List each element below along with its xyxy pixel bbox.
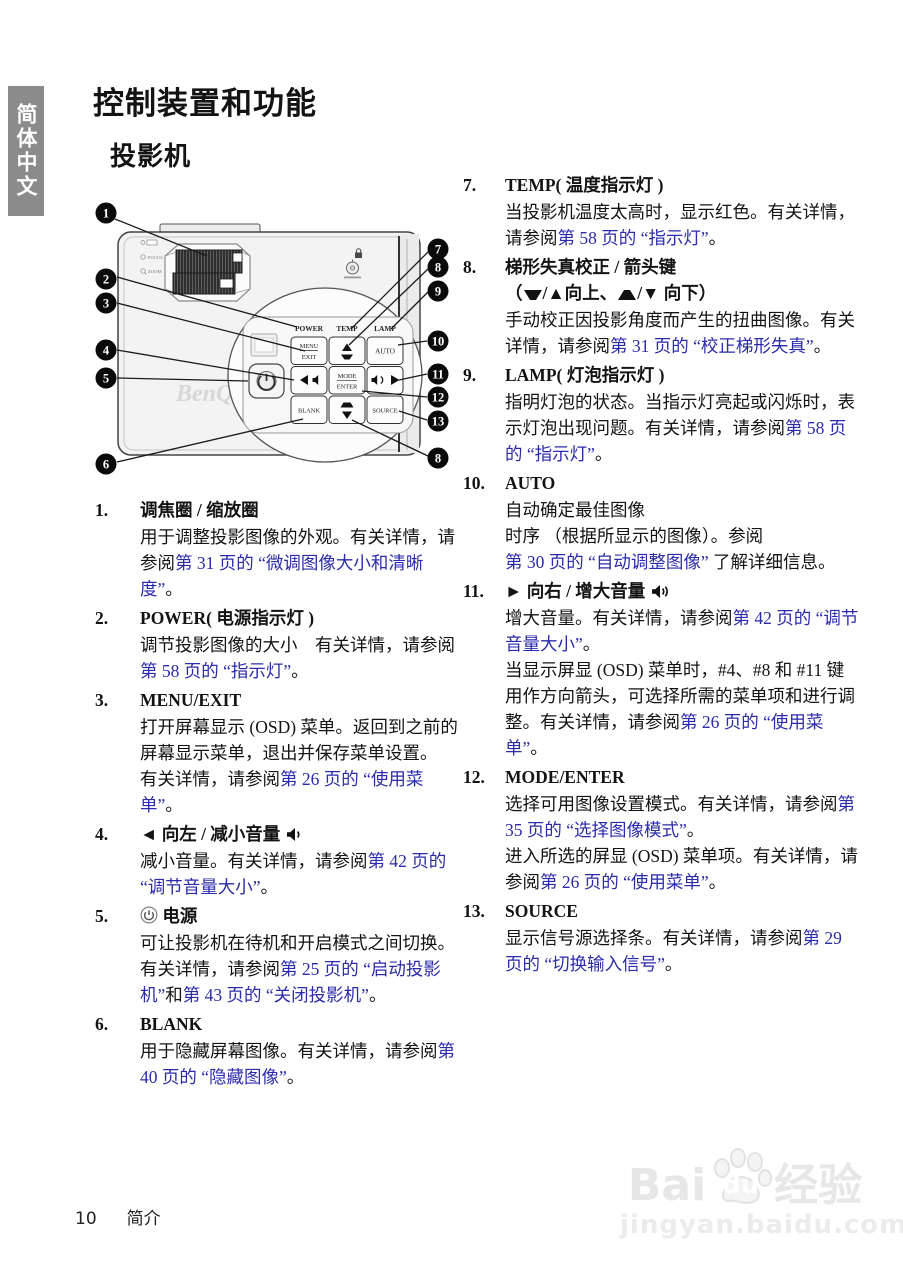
item-paragraph: 减小音量。有关详情，请参阅第 42 页的 “调节音量大小”。 bbox=[140, 848, 463, 900]
item-number: 9. bbox=[463, 362, 505, 467]
list-item-12: 12.MODE/ENTER选择可用图像设置模式。有关详情，请参阅第 35 页的 … bbox=[463, 764, 861, 895]
text-run: 用于隐藏屏幕图像。有关详情，请参阅 bbox=[140, 1041, 438, 1061]
item-paragraph: 用于调整投影图像的外观。有关详情，请参阅第 31 页的 “微调图像大小和清晰度”… bbox=[140, 524, 463, 602]
list-item-2: 2.POWER( 电源指示灯 )调节投影图像的大小 有关详情，请参阅第 58 页… bbox=[95, 605, 463, 684]
page-reference-link[interactable]: 第 26 页的 “使用菜单” bbox=[540, 872, 709, 892]
baidu-paw-icon: du bbox=[708, 1146, 772, 1210]
list-item-7: 7.TEMP( 温度指示灯 )当投影机温度太高时，显示红色。有关详情，请参阅第 … bbox=[463, 172, 861, 251]
right-column-list: 7.TEMP( 温度指示灯 )当投影机温度太高时，显示红色。有关详情，请参阅第 … bbox=[463, 172, 861, 980]
item-title: ► 向右 / 增大音量 bbox=[505, 578, 861, 604]
svg-text:SOURCE: SOURCE bbox=[372, 408, 397, 415]
svg-text:2: 2 bbox=[103, 273, 109, 287]
section-subtitle: 投影机 bbox=[110, 136, 191, 173]
item-body: 梯形失真校正 / 箭头键（/▲向上、/▼ 向下）手动校正因投影角度而产生的扭曲图… bbox=[505, 254, 861, 359]
left-column-list: 1.调焦圈 / 缩放圈用于调整投影图像的外观。有关详情，请参阅第 31 页的 “… bbox=[95, 497, 463, 1093]
list-item-8: 8.梯形失真校正 / 箭头键（/▲向上、/▼ 向下）手动校正因投影角度而产生的扭… bbox=[463, 254, 861, 359]
item-body: BLANK用于隐藏屏幕图像。有关详情，请参阅第 40 页的 “隐藏图像”。 bbox=[140, 1011, 463, 1090]
callout-12: 12 bbox=[428, 387, 449, 408]
item-body: ◄ 向左 / 减小音量 减小音量。有关详情，请参阅第 42 页的 “调节音量大小… bbox=[140, 821, 463, 900]
item-body: AUTO自动确定最佳图像时序 （根据所显示的图像）。参阅第 30 页的 “自动调… bbox=[505, 470, 861, 575]
list-item-11: 11.► 向右 / 增大音量 增大音量。有关详情，请参阅第 42 页的 “调节音… bbox=[463, 578, 861, 761]
svg-text:10: 10 bbox=[432, 335, 445, 349]
text-run: ► 向右 / 增大音量 bbox=[505, 581, 650, 601]
svg-text:3: 3 bbox=[103, 297, 109, 311]
item-body: ► 向右 / 增大音量 增大音量。有关详情，请参阅第 42 页的 “调节音量大小… bbox=[505, 578, 861, 761]
callout-8-bottom: 8 bbox=[428, 448, 449, 469]
svg-text:7: 7 bbox=[435, 243, 441, 257]
item-title: POWER( 电源指示灯 ) bbox=[140, 605, 463, 631]
projector-diagram: BenQ FOCUS ZOOM bbox=[85, 195, 462, 487]
item-paragraph: 可让投影机在待机和开启模式之间切换。 bbox=[140, 930, 463, 956]
item-paragraph: 打开屏幕显示 (OSD) 菜单。返回到之前的屏幕显示菜单，退出并保存菜单设置。 bbox=[140, 714, 463, 766]
item-body: LAMP( 灯泡指示灯 )指明灯泡的状态。当指示灯亮起或闪烁时，表示灯泡出现问题… bbox=[505, 362, 861, 467]
text-run: MODE/ENTER bbox=[505, 767, 625, 787]
text-run: 调焦圈 / 缩放圈 bbox=[140, 500, 259, 520]
svg-text:4: 4 bbox=[103, 344, 110, 358]
callout-2: 2 bbox=[96, 269, 117, 290]
list-item-4: 4.◄ 向左 / 减小音量 减小音量。有关详情，请参阅第 42 页的 “调节音量… bbox=[95, 821, 463, 900]
item-number: 4. bbox=[95, 821, 140, 900]
text-run: 。 bbox=[287, 1067, 305, 1087]
text-run: SOURCE bbox=[505, 901, 578, 921]
vol-up-icon bbox=[650, 584, 673, 599]
svg-text:11: 11 bbox=[432, 368, 444, 382]
manual-page: 简体中文 控制装置和功能 投影机 BenQ bbox=[0, 0, 903, 1280]
list-item-5: 5. 电源可让投影机在待机和开启模式之间切换。有关详情，请参阅第 25 页的 “… bbox=[95, 903, 463, 1008]
callout-9: 9 bbox=[428, 281, 449, 302]
callout-10: 10 bbox=[428, 331, 449, 352]
text-run: 可让投影机在待机和开启模式之间切换。 bbox=[140, 933, 455, 953]
callout-11: 11 bbox=[428, 364, 449, 385]
item-number: 5. bbox=[95, 903, 140, 1008]
item-title: 调焦圈 / 缩放圈 bbox=[140, 497, 463, 523]
item-body: SOURCE显示信号源选择条。有关详情，请参阅第 29 页的 “切换输入信号”。 bbox=[505, 898, 861, 977]
text-run: 打开屏幕显示 (OSD) 菜单。返回到之前的屏幕显示菜单，退出并保存菜单设置。 bbox=[140, 717, 458, 763]
text-run: TEMP( 温度指示灯 ) bbox=[505, 175, 663, 195]
svg-text:13: 13 bbox=[432, 415, 445, 429]
page-number: 10 bbox=[75, 1209, 97, 1229]
page-reference-link[interactable]: 第 58 页的 “指示灯” bbox=[558, 228, 709, 248]
item-number: 10. bbox=[463, 470, 505, 575]
callout-7: 7 bbox=[428, 239, 449, 260]
vol-down-icon bbox=[285, 827, 305, 842]
item-paragraph: 当投影机温度太高时，显示红色。有关详情，请参阅第 58 页的 “指示灯”。 bbox=[505, 199, 861, 251]
svg-text:MENU: MENU bbox=[300, 343, 319, 350]
callout-1: 1 bbox=[96, 203, 117, 224]
item-number: 11. bbox=[463, 578, 505, 761]
item-number: 2. bbox=[95, 605, 140, 684]
svg-text:9: 9 bbox=[435, 285, 441, 299]
list-item-6: 6.BLANK用于隐藏屏幕图像。有关详情，请参阅第 40 页的 “隐藏图像”。 bbox=[95, 1011, 463, 1090]
item-title: SOURCE bbox=[505, 898, 861, 924]
watermark-jingyan-text: 经验 bbox=[774, 1164, 862, 1208]
text-run: 电源 bbox=[158, 906, 197, 926]
item-number: 13. bbox=[463, 898, 505, 977]
svg-text:EXIT: EXIT bbox=[302, 354, 317, 361]
item-number: 1. bbox=[95, 497, 140, 602]
svg-text:8: 8 bbox=[435, 452, 441, 466]
text-run: 。 bbox=[165, 795, 183, 815]
item-title: TEMP( 温度指示灯 ) bbox=[505, 172, 861, 198]
focus-ring[interactable] bbox=[176, 250, 242, 273]
text-run: 。 bbox=[165, 579, 183, 599]
lens-assembly bbox=[165, 244, 250, 301]
power-indicator-label: POWER bbox=[295, 324, 324, 333]
power-icon bbox=[140, 906, 158, 924]
text-run: 。 bbox=[665, 954, 683, 974]
item-title: MENU/EXIT bbox=[140, 687, 463, 713]
item-title: AUTO bbox=[505, 470, 861, 496]
text-run: 。 bbox=[261, 877, 279, 897]
item-paragraph: 调节投影图像的大小 有关详情，请参阅第 58 页的 “指示灯”。 bbox=[140, 632, 463, 684]
text-run: AUTO bbox=[505, 473, 555, 493]
text-run: 。 bbox=[709, 228, 727, 248]
text-run: /▼ 向下） bbox=[637, 283, 716, 303]
item-title: 梯形失真校正 / 箭头键（/▲向上、/▼ 向下） bbox=[505, 254, 861, 306]
item-number: 12. bbox=[463, 764, 505, 895]
list-item-3: 3.MENU/EXIT打开屏幕显示 (OSD) 菜单。返回到之前的屏幕显示菜单，… bbox=[95, 687, 463, 818]
item-paragraph: 指明灯泡的状态。当指示灯亮起或闪烁时，表示灯泡出现问题。有关详情，请参阅第 58… bbox=[505, 389, 861, 467]
text-run: 。 bbox=[291, 661, 309, 681]
item-title: ◄ 向左 / 减小音量 bbox=[140, 821, 463, 847]
text-run: 调节投影图像的大小 有关详情，请参阅 bbox=[140, 635, 455, 655]
text-run: 。 bbox=[583, 634, 601, 654]
svg-text:8: 8 bbox=[435, 261, 441, 275]
item-title: BLANK bbox=[140, 1011, 463, 1037]
kt-down-icon bbox=[617, 289, 637, 301]
text-run: 。 bbox=[595, 444, 613, 464]
svg-text:12: 12 bbox=[432, 391, 445, 405]
svg-text:ZOOM: ZOOM bbox=[148, 269, 162, 274]
baidu-watermark: Bai du 经验 jingyan.baidu.com bbox=[620, 1146, 870, 1240]
item-body: MENU/EXIT打开屏幕显示 (OSD) 菜单。返回到之前的屏幕显示菜单，退出… bbox=[140, 687, 463, 818]
text-run: 有关详情，请参阅 bbox=[140, 769, 280, 789]
language-tab: 简体中文 bbox=[8, 86, 44, 216]
item-body: TEMP( 温度指示灯 )当投影机温度太高时，显示红色。有关详情，请参阅第 58… bbox=[505, 172, 861, 251]
text-run: （ bbox=[505, 283, 523, 303]
item-title: MODE/ENTER bbox=[505, 764, 861, 790]
item-paragraph: 进入所选的屏显 (OSD) 菜单项。有关详情，请参阅第 26 页的 “使用菜单”… bbox=[505, 843, 861, 895]
item-body: MODE/ENTER选择可用图像设置模式。有关详情，请参阅第 35 页的 “选择… bbox=[505, 764, 861, 895]
page-title: 控制装置和功能 bbox=[93, 78, 317, 123]
callout-8: 8 bbox=[428, 257, 449, 278]
item-number: 3. bbox=[95, 687, 140, 818]
svg-text:AUTO: AUTO bbox=[375, 348, 395, 356]
item-body: POWER( 电源指示灯 )调节投影图像的大小 有关详情，请参阅第 58 页的 … bbox=[140, 605, 463, 684]
text-run: 了解详细信息。 bbox=[709, 552, 836, 572]
text-run: 选择可用图像设置模式。有关详情，请参阅 bbox=[505, 794, 838, 814]
item-paragraph: 自动确定最佳图像时序 （根据所显示的图像）。参阅第 30 页的 “自动调整图像”… bbox=[505, 497, 861, 575]
list-item-1: 1.调焦圈 / 缩放圈用于调整投影图像的外观。有关详情，请参阅第 31 页的 “… bbox=[95, 497, 463, 602]
text-run: ◄ 向左 / 减小音量 bbox=[140, 824, 285, 844]
page-footer: 10简介 bbox=[75, 1204, 161, 1229]
control-panel: POWER TEMP LAMP bbox=[228, 288, 422, 462]
text-run: 自动确定最佳图像 bbox=[505, 500, 645, 520]
text-run: 用于调整投影图像的外观。有关详情， bbox=[140, 527, 438, 547]
item-paragraph: 有关详情，请参阅第 25 页的 “启动投影机”和第 43 页的 “关闭投影机”。 bbox=[140, 956, 463, 1008]
item-number: 7. bbox=[463, 172, 505, 251]
text-run: POWER( 电源指示灯 ) bbox=[140, 608, 314, 628]
text-run: 和 bbox=[165, 985, 183, 1005]
text-run: 。 bbox=[687, 820, 705, 840]
text-run: 情，请参阅 bbox=[698, 418, 786, 438]
watermark-url: jingyan.baidu.com bbox=[620, 1210, 870, 1240]
watermark-du-text: du bbox=[722, 1172, 759, 1198]
page-reference-link[interactable]: 第 43 页的 “关闭投影机” bbox=[183, 985, 369, 1005]
text-run: 。 bbox=[814, 336, 832, 356]
footer-section-label: 简介 bbox=[127, 1209, 161, 1229]
text-run: 梯形失真校正 / 箭头键 bbox=[505, 257, 676, 277]
item-paragraph: 显示信号源选择条。有关详情，请参阅第 29 页的 “切换输入信号”。 bbox=[505, 925, 861, 977]
item-paragraph: 当显示屏显 (OSD) 菜单时，#4、#8 和 #11 键用作方向箭头，可选择所… bbox=[505, 657, 861, 761]
text-run: 。 bbox=[709, 872, 727, 892]
text-run: 减小音量。有关详情，请参阅 bbox=[140, 851, 368, 871]
text-run: 有关详情，请参阅 bbox=[140, 959, 280, 979]
panel-button-power[interactable] bbox=[249, 364, 284, 398]
svg-text:BLANK: BLANK bbox=[298, 408, 320, 415]
list-item-10: 10.AUTO自动确定最佳图像时序 （根据所显示的图像）。参阅第 30 页的 “… bbox=[463, 470, 861, 575]
callout-4: 4 bbox=[96, 340, 117, 361]
item-title: 电源 bbox=[140, 903, 463, 929]
svg-text:ENTER: ENTER bbox=[337, 384, 358, 391]
list-item-13: 13.SOURCE显示信号源选择条。有关详情，请参阅第 29 页的 “切换输入信… bbox=[463, 898, 861, 977]
svg-text:MODE: MODE bbox=[338, 373, 357, 380]
text-run: 增大音量。有关详情，请参阅 bbox=[505, 608, 733, 628]
svg-text:FOCUS: FOCUS bbox=[148, 255, 163, 260]
text-run: 。 bbox=[530, 738, 548, 758]
item-body: 调焦圈 / 缩放圈用于调整投影图像的外观。有关详情，请参阅第 31 页的 “微调… bbox=[140, 497, 463, 602]
item-body: 电源可让投影机在待机和开启模式之间切换。有关详情，请参阅第 25 页的 “启动投… bbox=[140, 903, 463, 1008]
callout-5: 5 bbox=[96, 368, 117, 389]
page-reference-link[interactable]: 第 58 页的 “指示灯” bbox=[140, 661, 291, 681]
svg-text:5: 5 bbox=[103, 372, 109, 386]
item-paragraph: 用于隐藏屏幕图像。有关详情，请参阅第 40 页的 “隐藏图像”。 bbox=[140, 1038, 463, 1090]
page-reference-link[interactable]: 第 30 页的 “自动调整图像” bbox=[505, 552, 709, 572]
kt-up-icon bbox=[523, 289, 543, 301]
text-run: 。 bbox=[369, 985, 387, 1005]
text-run: MENU/EXIT bbox=[140, 690, 241, 710]
callout-3: 3 bbox=[96, 293, 117, 314]
item-number: 8. bbox=[463, 254, 505, 359]
brand-logo: BenQ bbox=[175, 381, 233, 407]
text-run: 时序 （根据所显示的图像）。参阅 bbox=[505, 526, 763, 546]
page-reference-link[interactable]: 第 31 页的 “校正梯形失真” bbox=[610, 336, 814, 356]
text-run: 显示信号源选择条。有关详情，请参阅 bbox=[505, 928, 803, 948]
item-paragraph: 有关详情，请参阅第 26 页的 “使用菜单”。 bbox=[140, 766, 463, 818]
list-item-9: 9.LAMP( 灯泡指示灯 )指明灯泡的状态。当指示灯亮起或闪烁时，表示灯泡出现… bbox=[463, 362, 861, 467]
callout-6: 6 bbox=[96, 454, 117, 475]
lamp-indicator-label: LAMP bbox=[374, 324, 396, 333]
panel-button-left-volume-down[interactable] bbox=[291, 367, 327, 395]
svg-text:1: 1 bbox=[103, 207, 109, 221]
item-title: LAMP( 灯泡指示灯 ) bbox=[505, 362, 861, 388]
item-paragraph: 增大音量。有关详情，请参阅第 42 页的 “调节音量大小”。 bbox=[505, 605, 861, 657]
item-paragraph: 选择可用图像设置模式。有关详情，请参阅第 35 页的 “选择图像模式”。 bbox=[505, 791, 861, 843]
svg-text:6: 6 bbox=[103, 458, 109, 472]
text-run: LAMP( 灯泡指示灯 ) bbox=[505, 365, 664, 385]
text-run: /▲向上、 bbox=[543, 283, 618, 303]
text-run: BLANK bbox=[140, 1014, 202, 1034]
watermark-brand-text: Bai bbox=[628, 1164, 706, 1208]
item-paragraph: 手动校正因投影角度而产生的扭曲图像。有关详情，请参阅第 31 页的 “校正梯形失… bbox=[505, 307, 861, 359]
panel-button-keystone-down[interactable] bbox=[329, 396, 365, 424]
callout-13: 13 bbox=[428, 411, 449, 432]
item-number: 6. bbox=[95, 1011, 140, 1090]
